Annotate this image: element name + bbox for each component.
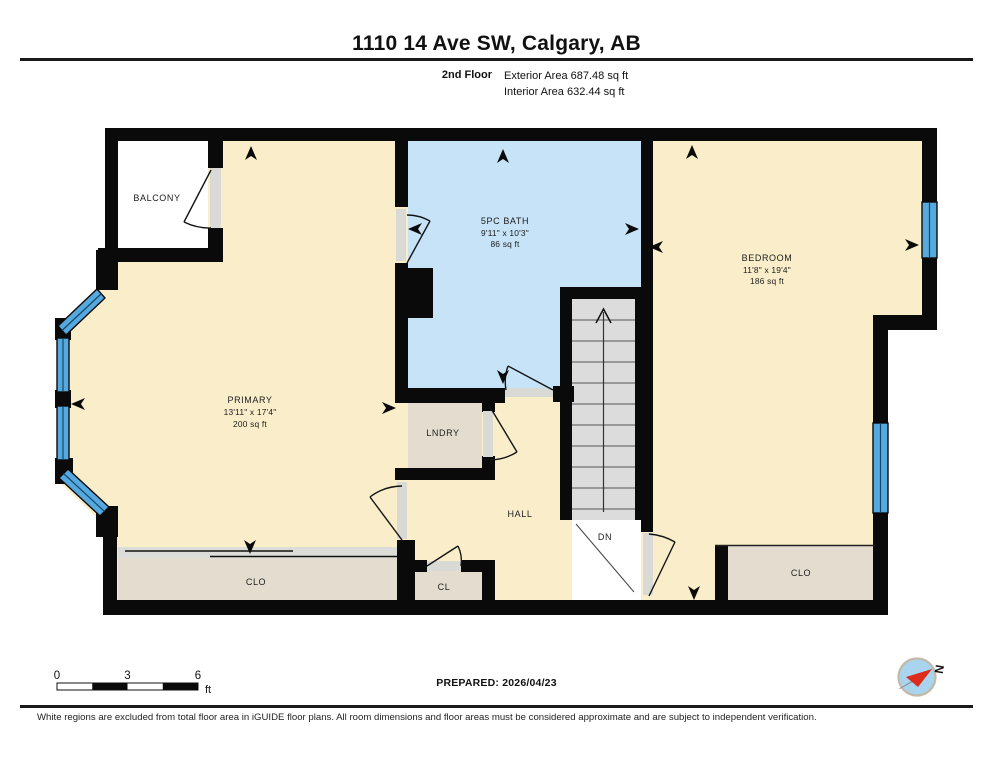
- label-hall: HALL: [508, 509, 533, 519]
- label-bath-dims: 9'11" x 10'3": [481, 228, 529, 238]
- label-primary: PRIMARY: [227, 395, 272, 405]
- label-bedroom: BEDROOM: [742, 253, 793, 263]
- prepared-date: PREPARED: 2026/04/23: [0, 677, 993, 689]
- label-primary-area: 200 sq ft: [233, 419, 267, 429]
- label-laundry: LNDRY: [426, 428, 459, 438]
- door-panel: [397, 482, 407, 539]
- footer-divider: [20, 705, 973, 708]
- stairs: [572, 299, 641, 600]
- floor-plan-page: 1110 14 Ave SW, Calgary, AB 2nd Floor Ex…: [0, 0, 993, 768]
- floor-plan-drawing: BALCONY PRIMARY 13'11" x 17'4" 200 sq ft…: [0, 0, 993, 768]
- door-panel: [505, 388, 553, 397]
- label-closet-primary: CLO: [246, 577, 266, 587]
- footer-disclaimer: White regions are excluded from total fl…: [37, 712, 967, 723]
- label-bath: 5PC BATH: [481, 216, 529, 226]
- label-balcony: BALCONY: [133, 193, 180, 203]
- label-primary-dims: 13'11" x 17'4": [224, 407, 277, 417]
- label-closet-bedroom: CLO: [791, 568, 811, 578]
- label-bath-area: 86 sq ft: [490, 239, 520, 249]
- door-panel: [643, 533, 653, 595]
- label-closet-hall: CL: [438, 582, 451, 592]
- label-bedroom-dims: 11'8" x 19'4": [743, 265, 791, 275]
- label-stairs-dn: DN: [598, 532, 612, 542]
- door-panel: [396, 209, 406, 261]
- door-panel: [210, 168, 221, 228]
- label-bedroom-area: 186 sq ft: [750, 276, 784, 286]
- door-panel: [483, 411, 493, 457]
